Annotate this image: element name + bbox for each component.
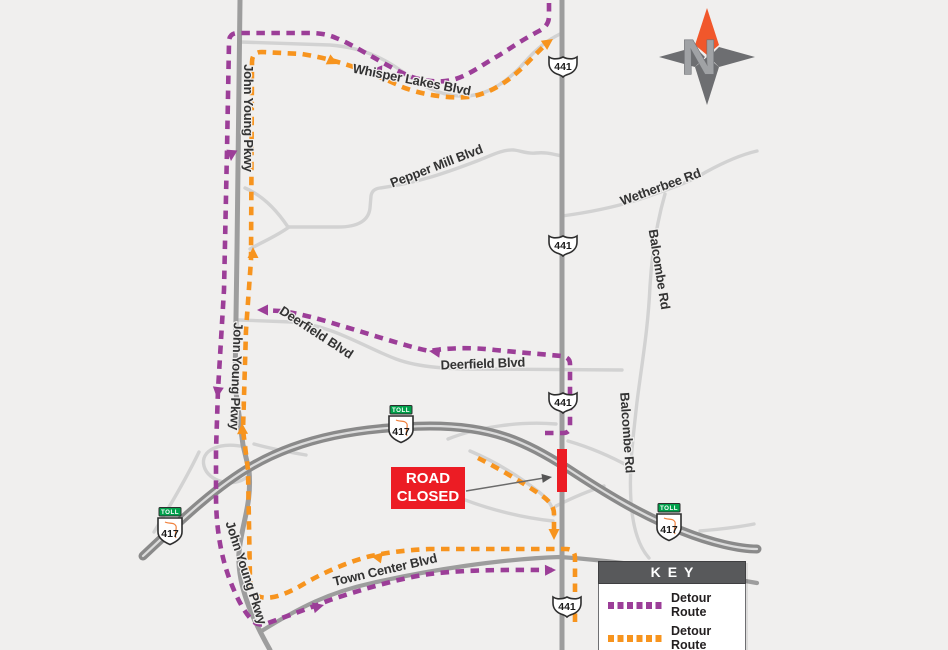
orange-detour-route (237, 34, 575, 622)
compass-rose: N (659, 8, 755, 105)
shield-number: 417 (392, 426, 410, 438)
toll-417-shield: TOLL 417 (389, 406, 413, 443)
map-canvas: 441 441 441 441 TOLL 417 TOLL 417 (0, 0, 948, 650)
ramp-417-right-end (700, 524, 754, 531)
shield-number: 417 (161, 528, 179, 540)
road-closed-callout: ROAD CLOSED (391, 467, 465, 509)
shield-number: 441 (554, 240, 572, 252)
us-441-shield: 441 (549, 393, 577, 413)
orange-detour-route-main (243, 44, 575, 622)
us-441-shield: 441 (549, 57, 577, 77)
road-closed-line2: CLOSED (391, 488, 465, 506)
road-name-labels: Whisper Lakes Blvd John Young Pkwy John … (222, 61, 703, 627)
purple-route-arrows (212, 65, 557, 614)
label-john-young-pkwy-mid: John Young Pkwy (227, 322, 246, 431)
us-441-shield: 441 (549, 236, 577, 256)
orange-arrow-south-441 (549, 529, 560, 540)
label-deerfield-blvd-east: Deerfield Blvd (440, 355, 525, 373)
purple-dashed-swatch (608, 602, 662, 609)
key-body: Detour Route Detour Route Road Closed (598, 584, 746, 650)
toll-417-shield: TOLL 417 (158, 508, 182, 545)
callout-arrow-head (541, 473, 552, 483)
toll-banner-text: TOLL (660, 505, 678, 512)
key-row-orange-detour: Detour Route (608, 624, 738, 650)
road-closed-marker (557, 449, 567, 492)
label-deerfield-blvd-west: Deerfield Blvd (277, 303, 356, 362)
purple-arrow-west-deerfield-west (257, 305, 268, 316)
road-pepper-mill-branch (250, 227, 289, 249)
label-whisper-lakes-blvd: Whisper Lakes Blvd (352, 61, 473, 99)
key-row-label: Detour Route (671, 591, 738, 619)
road-pepper-mill-blvd (245, 150, 562, 227)
label-pepper-mill-blvd: Pepper Mill Blvd (388, 141, 485, 190)
purple-arrow-east-towncenter-east (545, 565, 556, 576)
toll-417-shield: TOLL 417 (657, 504, 681, 541)
label-john-young-pkwy-top: John Young Pkwy (241, 64, 256, 173)
map-key-legend: KEY Detour Route Detour Route Road Close… (598, 561, 746, 650)
key-title: KEY (598, 561, 746, 584)
detour-map: 441 441 441 441 TOLL 417 TOLL 417 (0, 0, 948, 650)
toll-banner-text: TOLL (392, 407, 410, 414)
road-whisper-lakes-blvd (240, 34, 560, 96)
purple-arrow-south-jyp-lower (212, 386, 224, 398)
purple-detour-route (212, 3, 570, 624)
orange-dashed-swatch (608, 635, 662, 642)
toll-banner-text: TOLL (161, 509, 179, 516)
shield-number: 441 (554, 397, 572, 409)
shield-number: 417 (660, 524, 678, 536)
road-closed-line1: ROAD (391, 470, 465, 488)
ramp-441-417-ne (568, 441, 630, 467)
shield-number: 441 (554, 61, 572, 73)
label-wetherbee-rd: Wetherbee Rd (618, 165, 703, 208)
key-row-purple-detour: Detour Route (608, 591, 738, 619)
key-row-label: Detour Route (671, 624, 738, 650)
compass-north-letter: N (681, 31, 716, 85)
shield-number: 441 (558, 601, 576, 613)
